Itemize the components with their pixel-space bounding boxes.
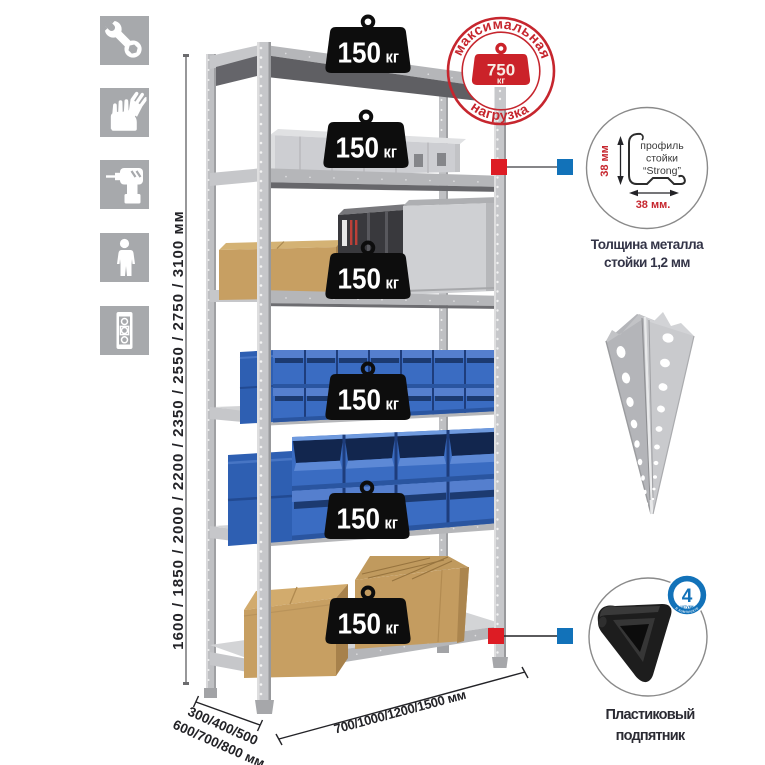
svg-text:стойки: стойки <box>646 153 678 165</box>
svg-text:150: 150 <box>338 385 382 417</box>
svg-text:150: 150 <box>338 264 382 296</box>
svg-text:150: 150 <box>336 133 380 165</box>
svg-text:кг: кг <box>386 275 400 293</box>
svg-text:кг: кг <box>385 515 399 533</box>
svg-text:подпятник: подпятник <box>616 728 686 744</box>
svg-text:Пластиковый: Пластиковый <box>605 707 694 723</box>
svg-text:150: 150 <box>338 609 382 641</box>
svg-text:38 мм.: 38 мм. <box>636 199 671 211</box>
svg-text:Толщина металла: Толщина металла <box>591 237 704 252</box>
svg-text:кг: кг <box>386 396 400 414</box>
svg-text:кг: кг <box>497 76 506 86</box>
svg-text:стойки 1,2 мм: стойки 1,2 мм <box>604 255 690 270</box>
svg-text:штуки: штуки <box>680 604 694 609</box>
svg-text:1600 / 1850 / 2000 / 2200 / 23: 1600 / 1850 / 2000 / 2200 / 2350 / 2550 … <box>170 210 187 650</box>
svg-text:профиль: профиль <box>640 140 684 152</box>
svg-text:кг: кг <box>384 144 398 162</box>
svg-text:150: 150 <box>337 504 381 536</box>
svg-text:кг: кг <box>386 49 400 67</box>
svg-text:700/1000/1200/1500 мм: 700/1000/1200/1500 мм <box>332 687 467 737</box>
svg-text:“Strong”: “Strong” <box>643 165 681 177</box>
svg-text:150: 150 <box>338 38 382 70</box>
svg-text:кг: кг <box>386 620 400 638</box>
svg-text:38 мм: 38 мм <box>599 145 611 177</box>
